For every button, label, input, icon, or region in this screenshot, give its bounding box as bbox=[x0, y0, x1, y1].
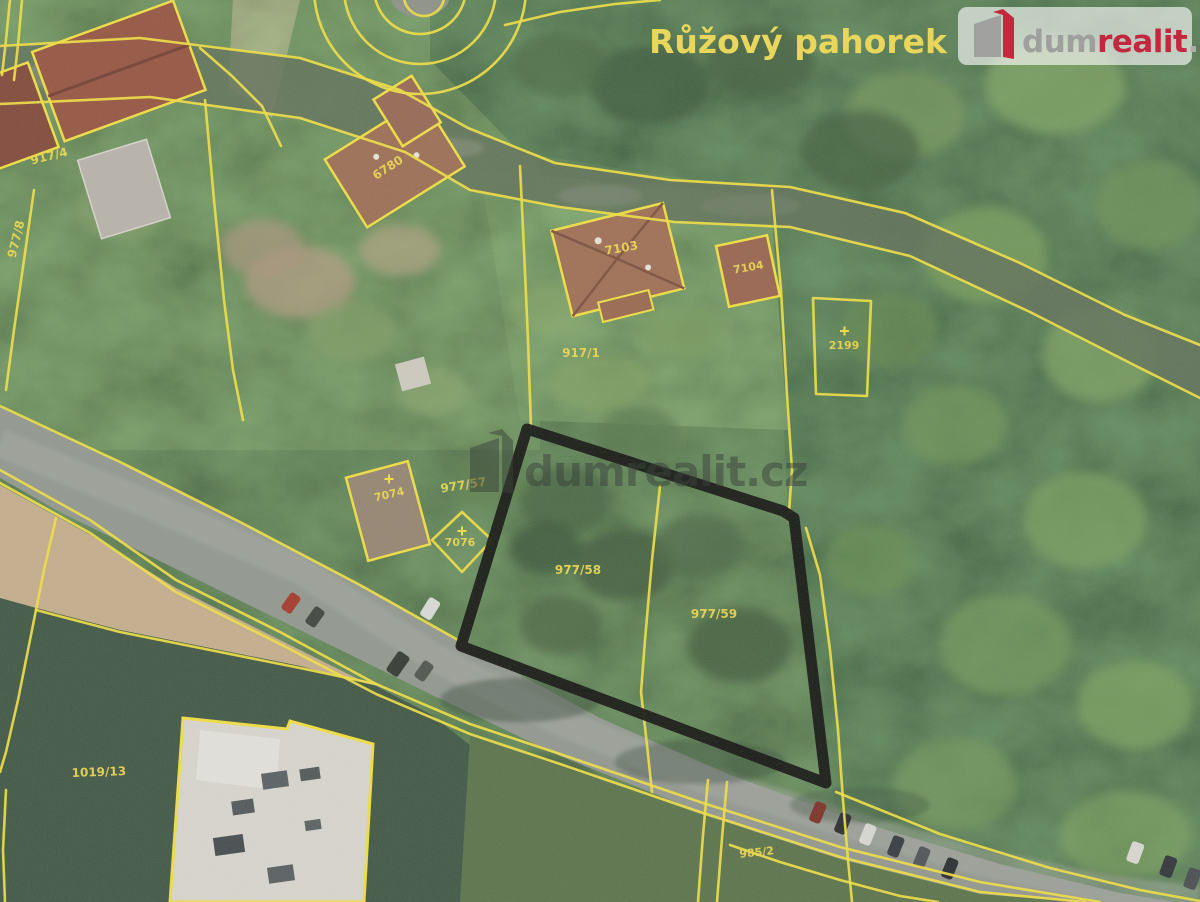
aerial-map-canvas: Růžový pahorek 917/4 977/8 6780 7103 710… bbox=[0, 0, 1200, 902]
photo-grain-overlay bbox=[0, 0, 1200, 902]
aerial-map-screenshot: Růžový pahorek 917/4 977/8 6780 7103 710… bbox=[0, 0, 1200, 902]
